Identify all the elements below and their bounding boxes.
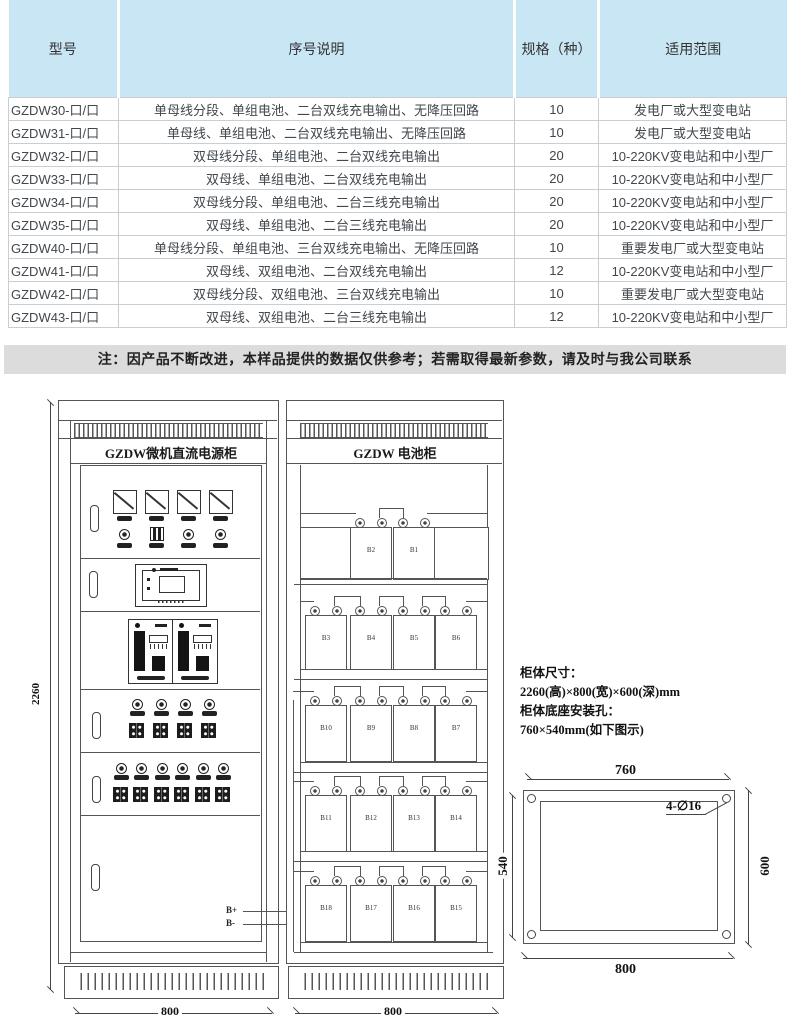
indicator-knob [180,699,191,710]
battery-bridge-wire [422,866,446,876]
battery-label: B12 [351,814,391,822]
mount-hole [527,794,536,803]
description-cell: 单母线分段、单组电池、三台双线充电输出、无降压回路 [119,236,515,259]
charger-heatsink [134,631,145,671]
table-row: GZDW43-口/口双母线、双组电池、二台三线充电输出1210-220KV变电站… [9,305,787,328]
cabinet-line [70,420,71,962]
mount-bottom-dimension-label: 800 [612,962,639,978]
spec-table: 型号 序号说明 规格（种） 适用范围 GZDW30-口/口单母线分段、单组电池、… [8,0,787,328]
circuit-breaker [133,787,148,802]
battery-label: B15 [436,904,476,912]
battery-cell: B14 [435,795,477,852]
table-row: GZDW35-口/口双母线、单组电池、二台三线充电输出2010-220KV变电站… [9,213,787,236]
indicator-knob [177,763,188,774]
battery-wire [293,781,314,782]
meter-label-bar [149,516,164,521]
meter-label-bar [213,516,228,521]
indicator-knob [136,763,147,774]
col-header-spec-count: 规格（种） [515,0,599,98]
battery-bridge-wire [334,596,361,606]
meter-label-bar [117,516,132,521]
charger-label-bar [199,624,211,627]
cabinet-line [266,420,267,962]
battery-cell: B2 [350,527,392,580]
description-cell: 单母线、单组电池、二台双线充电输出、无降压回路 [119,121,515,144]
battery-bridge-wire [334,866,361,876]
battery-label: B10 [306,724,346,732]
battery-wire [293,871,314,872]
description-cell: 双母线、单组电池、二台三线充电输出 [119,213,515,236]
spec-line: 760×540mm(如下图示) [520,721,782,740]
monitor-button [147,578,150,581]
description-cell: 双母线分段、单组电池、二台三线充电输出 [119,190,515,213]
shelf-line [300,578,487,579]
col-header-model: 型号 [9,0,119,98]
circuit-breaker [177,723,192,738]
battery-bridge-wire [422,596,446,606]
cabinet-line [58,438,277,439]
model-cell: GZDW32-口/口 [9,144,119,167]
width-dimension-label: 800 [381,1004,405,1019]
battery-bridge-wire [379,776,404,786]
terminal-positive-label: B+ [226,905,237,915]
battery-label: B3 [306,634,346,642]
section-divider [80,815,260,816]
circuit-breaker [174,787,189,802]
battery-label: B7 [436,724,476,732]
battery-cell: B18 [305,885,347,942]
meter-label-bar [149,543,164,548]
circuit-breaker [154,787,169,802]
battery-wire [293,691,314,692]
power-cabinet-title: GZDW微机直流电源柜 [80,443,262,462]
spec-count-cell: 12 [515,259,599,282]
meter-label-bar [130,711,145,716]
model-cell: GZDW35-口/口 [9,213,119,236]
battery-wire [427,513,487,514]
circuit-breaker [195,787,210,802]
charger-foot-bar [181,676,209,680]
charger-led [135,623,140,628]
spec-count-cell: 10 [515,236,599,259]
selector-switch [150,527,164,541]
battery-label: B9 [351,724,391,732]
battery-label: B14 [436,814,476,822]
shelf-line [294,679,487,680]
mount-bottom-dimension-line [523,958,733,959]
battery-cell: B9 [350,705,392,762]
range-cell: 10-220KV变电站和中小型厂 [599,167,787,190]
battery-cell: B15 [435,885,477,942]
spec-count-cell: 20 [515,213,599,236]
monitor-unit [135,564,207,607]
battery-cabinet-title: GZDW 电池柜 [304,443,486,462]
battery-label: B11 [306,814,346,822]
meter-label-bar [213,543,228,548]
battery-cell: B3 [305,615,347,670]
circuit-breaker [215,787,230,802]
base-vent-grille [302,973,489,990]
table-row: GZDW41-口/口双母线、双组电池、二台双线充电输出1210-220KV变电站… [9,259,787,282]
table-row: GZDW42-口/口双母线分段、双组电池、三台双线充电输出10重要发电厂或大型变… [9,282,787,305]
indicator-knob [157,763,168,774]
spec-line: 柜体尺寸： [520,664,782,683]
table-row: GZDW33-口/口双母线、单组电池、二台双线充电输出2010-220KV变电站… [9,167,787,190]
mount-hole [722,794,731,803]
battery-bridge-wire [379,686,404,696]
shelf-line [294,772,487,773]
charger-led [179,623,184,628]
battery-bridge-wire [379,596,404,606]
description-cell: 单母线分段、单组电池、二台双线充电输出、无降压回路 [119,98,515,121]
meter-label-bar [134,775,149,780]
indicator-knob [218,763,229,774]
vent-grille [300,423,488,438]
spec-count-cell: 10 [515,98,599,121]
battery-label: B6 [436,634,476,642]
range-cell: 发电厂或大型变电站 [599,121,787,144]
indicator-knob [116,763,127,774]
charger-label-bar [155,624,167,627]
battery-bridge-wire [379,508,404,518]
cabinet-line [70,952,266,953]
description-cell: 双母线、双组电池、二台三线充电输出 [119,305,515,328]
description-cell: 双母线、双组电池、二台双线充电输出 [119,259,515,282]
monitor-label-bar [160,568,178,571]
monitor-keypad [158,600,184,603]
battery-cell: B16 [393,885,435,942]
hole-count-label: 4-∅16 [666,798,701,814]
shelf-line [294,584,487,585]
battery-bridge-wire [379,866,404,876]
description-cell: 双母线、单组电池、二台双线充电输出 [119,167,515,190]
battery-wire [466,871,487,872]
circuit-breaker [153,723,168,738]
range-cell: 10-220KV变电站和中小型厂 [599,305,787,328]
meter-label-bar [178,711,193,716]
model-cell: GZDW33-口/口 [9,167,119,190]
analog-meter [177,490,201,514]
shelf-line [294,952,493,953]
range-cell: 重要发电厂或大型变电站 [599,282,787,305]
charger-display [149,635,168,643]
cabinet-line [70,463,266,464]
battery-cell: B1 [393,527,435,580]
spec-count-cell: 10 [515,282,599,305]
mount-right-dimension-label: 600 [757,853,773,879]
door-handle [89,571,98,598]
range-cell: 10-220KV变电站和中小型厂 [599,213,787,236]
battery-label: B18 [306,904,346,912]
battery-bridge-wire [422,776,446,786]
door-handle [92,776,101,803]
table-row: GZDW30-口/口单母线分段、单组电池、二台双线充电输出、无降压回路10发电厂… [9,98,787,121]
mount-hole [722,930,731,939]
table-row: GZDW31-口/口单母线、单组电池、二台双线充电输出、无降压回路10发电厂或大… [9,121,787,144]
battery-label: B8 [394,724,434,732]
battery-cell: B13 [393,795,435,852]
battery-cell: B8 [393,705,435,762]
model-cell: GZDW30-口/口 [9,98,119,121]
section-divider [80,558,260,559]
cabinet-spec-text: 柜体尺寸： 2260(高)×800(宽)×600(深)mm 柜体底座安装孔： 7… [520,664,782,740]
section-divider [80,752,260,753]
cabinet-line [286,438,502,439]
indicator-knob [119,529,130,540]
battery-label: B5 [394,634,434,642]
monitor-screen [159,576,185,593]
shelf-spacer [433,527,489,580]
battery-label: B17 [351,904,391,912]
battery-bridge-wire [422,686,446,696]
cabinet-line [286,463,502,464]
battery-cell: B12 [350,795,392,852]
leader-line [666,814,706,815]
battery-wire [300,601,314,602]
meter-label-bar [154,711,169,716]
analog-meter [113,490,137,514]
table-header-row: 型号 序号说明 规格（种） 适用范围 [9,0,787,98]
spec-count-cell: 20 [515,167,599,190]
meter-label-bar [202,711,217,716]
shelf-line [294,861,487,862]
battery-wire [300,513,356,514]
circuit-breaker [201,723,216,738]
range-cell: 10-220KV变电站和中小型厂 [599,259,787,282]
battery-cell: B5 [393,615,435,670]
height-dimension-line [50,402,51,990]
mount-top-dimension-label: 760 [612,763,639,779]
meter-label-bar [114,775,129,780]
shelf-line [300,669,487,670]
range-cell: 重要发电厂或大型变电站 [599,236,787,259]
cabinet-line [286,420,502,421]
monitor-button [147,587,150,590]
shelf-line [300,851,487,852]
section-divider [80,689,260,690]
meter-label-bar [196,775,211,780]
circuit-breaker [129,723,144,738]
indicator-knob [204,699,215,710]
range-cell: 10-220KV变电站和中小型厂 [599,144,787,167]
charger-display [193,635,212,643]
table-row: GZDW32-口/口双母线分段、单组电池、二台双线充电输出2010-220KV变… [9,144,787,167]
spec-line: 柜体底座安装孔： [520,702,782,721]
indicator-knob [132,699,143,710]
battery-cell: B4 [350,615,392,670]
charger-block [152,656,165,671]
analog-meter [209,490,233,514]
base-vent-grille [78,973,264,990]
model-cell: GZDW40-口/口 [9,236,119,259]
meter-label-bar [155,775,170,780]
indicator-knob [156,699,167,710]
battery-wire [466,781,487,782]
charger-block [196,656,209,671]
meter-label-bar [216,775,231,780]
door-handle [91,864,100,891]
width-dimension-label: 800 [158,1004,182,1019]
shelf-line [300,762,487,763]
spec-count-cell: 10 [515,121,599,144]
indicator-knob [183,529,194,540]
shelf-line [300,942,487,943]
mount-inner-rect [540,801,718,931]
description-cell: 双母线分段、双组电池、三台双线充电输出 [119,282,515,305]
battery-cell: B11 [305,795,347,852]
description-cell: 双母线分段、单组电池、二台双线充电输出 [119,144,515,167]
mount-hole [527,930,536,939]
model-cell: GZDW31-口/口 [9,121,119,144]
charger-module [172,619,218,684]
table-row: GZDW34-口/口双母线分段、单组电池、二台三线充电输出2010-220KV变… [9,190,787,213]
spec-count-cell: 20 [515,144,599,167]
meter-label-bar [181,543,196,548]
indicator-knob [215,529,226,540]
height-dimension-label: 2260 [30,680,42,708]
door-handle [92,712,101,739]
battery-cell: B6 [435,615,477,670]
meter-label-bar [117,543,132,548]
meter-label-bar [175,775,190,780]
mount-left-dimension-label: 540 [495,853,511,879]
charger-heatsink [178,631,189,671]
battery-label: B13 [394,814,434,822]
battery-label: B4 [351,634,391,642]
disclaimer-note: 注：因产品不断改进，本样品提供的数据仅供参考；若需取得最新参数，请及时与我公司联… [4,345,786,374]
col-header-range: 适用范围 [599,0,787,98]
model-cell: GZDW41-口/口 [9,259,119,282]
mount-left-dimension-line [512,795,513,938]
shelf-spacer [300,527,352,580]
mount-right-dimension-line [748,790,749,945]
battery-bridge-wire [334,686,361,696]
charger-ticks [150,644,169,649]
cabinet-line [58,420,277,421]
spec-line: 2260(高)×800(宽)×600(深)mm [520,683,782,702]
indicator-knob [198,763,209,774]
charger-ticks [194,644,213,649]
charger-foot-bar [137,676,165,680]
range-cell: 10-220KV变电站和中小型厂 [599,190,787,213]
mount-top-dimension-line [527,779,729,780]
model-cell: GZDW42-口/口 [9,282,119,305]
spec-count-cell: 20 [515,190,599,213]
meter-label-bar [181,516,196,521]
analog-meter [145,490,169,514]
battery-label: B16 [394,904,434,912]
terminal-negative-label: B- [226,918,235,928]
monitor-led [152,568,156,572]
model-cell: GZDW43-口/口 [9,305,119,328]
battery-cell: B7 [435,705,477,762]
spec-count-cell: 12 [515,305,599,328]
vent-grille [74,423,263,438]
battery-cell: B10 [305,705,347,762]
charger-module [128,619,174,684]
col-header-description: 序号说明 [119,0,515,98]
range-cell: 发电厂或大型变电站 [599,98,787,121]
datasheet-page: 型号 序号说明 规格（种） 适用范围 GZDW30-口/口单母线分段、单组电池、… [0,0,790,1036]
battery-label: B2 [351,546,391,554]
battery-bridge-wire [334,776,361,786]
circuit-breaker [113,787,128,802]
battery-wire [466,601,487,602]
power-cabinet-door [80,465,262,942]
model-cell: GZDW34-口/口 [9,190,119,213]
door-handle [90,505,99,532]
battery-wire [466,691,487,692]
battery-label: B1 [394,546,434,554]
battery-rail [293,700,294,952]
section-divider [80,611,260,612]
table-row: GZDW40-口/口单母线分段、单组电池、三台双线充电输出、无降压回路10重要发… [9,236,787,259]
battery-cell: B17 [350,885,392,942]
